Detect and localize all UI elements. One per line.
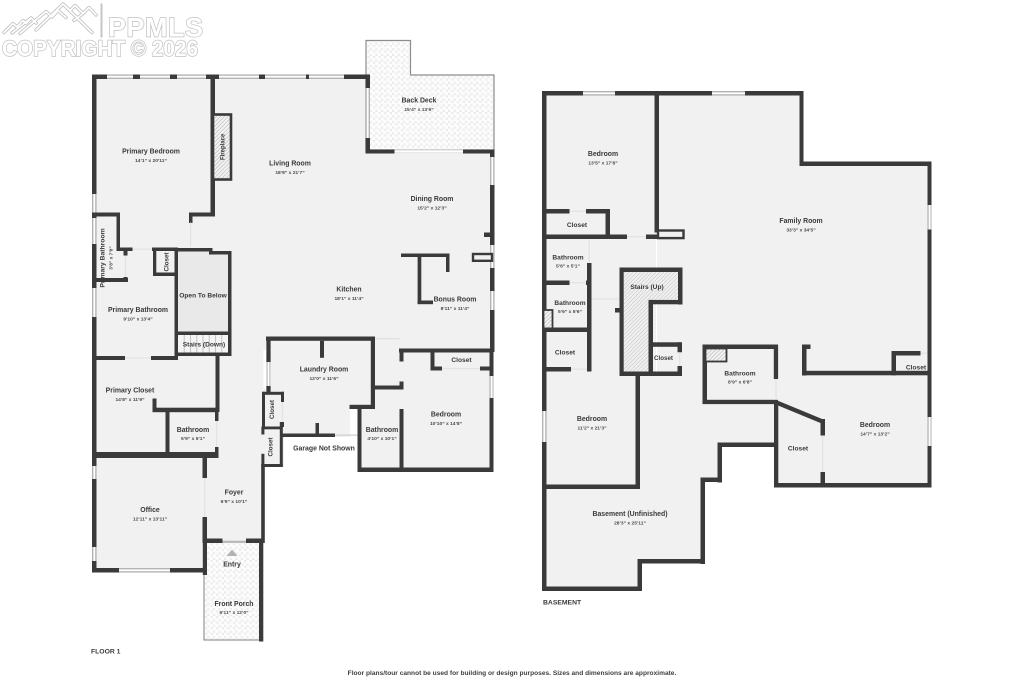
svg-text:Bedroom: Bedroom [860, 422, 890, 429]
svg-text:6’11” x 12’0”: 6’11” x 12’0” [219, 610, 249, 616]
svg-text:Dining Room: Dining Room [411, 196, 454, 203]
svg-text:Stairs (Down): Stairs (Down) [183, 342, 226, 349]
svg-text:Living Room: Living Room [269, 161, 311, 168]
svg-text:Bedroom: Bedroom [431, 412, 461, 419]
svg-text:Primary Bathroom: Primary Bathroom [108, 307, 168, 314]
svg-text:8’9” x 6’8”: 8’9” x 6’8” [728, 380, 752, 386]
svg-text:5’9” x 5’1”: 5’9” x 5’1” [181, 436, 205, 442]
svg-text:Closet: Closet [451, 357, 472, 364]
svg-text:Bedroom: Bedroom [588, 151, 618, 158]
svg-text:Closet: Closet [268, 438, 275, 457]
svg-text:13’5” x 17’8”: 13’5” x 17’8” [588, 161, 618, 167]
svg-text:Floor plans/tour cannot be use: Floor plans/tour cannot be used for buil… [348, 670, 677, 677]
svg-text:Bathroom: Bathroom [552, 255, 583, 262]
svg-text:33’3” x 34’5”: 33’3” x 34’5” [786, 228, 816, 234]
svg-text:FLOOR 1: FLOOR 1 [91, 649, 121, 656]
svg-text:Bathroom: Bathroom [366, 427, 399, 434]
svg-text:28’3” x 25’11”: 28’3” x 25’11” [614, 521, 646, 527]
svg-text:Primary Bedroom: Primary Bedroom [122, 149, 180, 156]
svg-text:12’11” x 13’11”: 12’11” x 13’11” [133, 517, 168, 523]
svg-text:Front Porch: Front Porch [214, 601, 253, 608]
svg-text:Stairs (Up): Stairs (Up) [630, 284, 663, 291]
svg-text:Kitchen: Kitchen [336, 287, 361, 294]
svg-text:3’8” x 7’8”: 3’8” x 7’8” [109, 246, 115, 270]
svg-text:8’11” x 11’4”: 8’11” x 11’4” [441, 306, 470, 312]
svg-text:5’6” x 5’6”: 5’6” x 5’6” [558, 309, 582, 315]
svg-text:Bedroom: Bedroom [577, 416, 607, 423]
svg-text:18’8” x 21’7”: 18’8” x 21’7” [275, 170, 305, 176]
svg-text:14’7” x 13’2”: 14’7” x 13’2” [860, 432, 890, 438]
svg-text:Closet: Closet [654, 355, 673, 362]
svg-text:Back Deck: Back Deck [402, 98, 437, 105]
svg-text:6’9” x 10’1”: 6’9” x 10’1” [221, 499, 248, 505]
svg-text:Closet: Closet [164, 253, 171, 272]
svg-text:14’8” x 11’9”: 14’8” x 11’9” [115, 397, 145, 403]
svg-text:9’10” x 13’4”: 9’10” x 13’4” [123, 317, 153, 323]
svg-text:4’10” x 10’1”: 4’10” x 10’1” [367, 436, 397, 442]
svg-text:Laundry Room: Laundry Room [300, 367, 349, 374]
svg-text:18’1” x 11’4”: 18’1” x 11’4” [334, 296, 364, 302]
svg-text:Closet: Closet [906, 365, 927, 372]
svg-text:15’4” x 13’6”: 15’4” x 13’6” [404, 107, 434, 113]
svg-text:COPYRIGHT © 2026: COPYRIGHT © 2026 [2, 36, 198, 61]
svg-text:12’0” x 11’6”: 12’0” x 11’6” [309, 376, 339, 382]
svg-text:Office: Office [140, 507, 160, 514]
svg-text:Garage Not Shown: Garage Not Shown [293, 446, 355, 453]
svg-text:15’2” x 12’3”: 15’2” x 12’3” [417, 206, 447, 212]
svg-text:Primary Closet: Primary Closet [106, 388, 155, 395]
svg-text:11’2” x 21’3”: 11’2” x 21’3” [577, 426, 607, 432]
svg-text:Foyer: Foyer [225, 490, 244, 497]
svg-text:Fireplace: Fireplace [221, 133, 227, 160]
svg-text:Bonus Room: Bonus Room [434, 297, 477, 304]
svg-text:Entry: Entry [223, 562, 241, 569]
svg-text:10’10” x 14’8”: 10’10” x 14’8” [430, 421, 463, 427]
svg-text:Closet: Closet [567, 222, 588, 229]
svg-text:Family Room: Family Room [779, 218, 822, 225]
svg-text:Open To Below: Open To Below [179, 293, 227, 300]
svg-text:BASEMENT: BASEMENT [543, 600, 582, 607]
svg-text:14’1” x 20’11”: 14’1” x 20’11” [135, 158, 167, 164]
svg-text:Closet: Closet [269, 400, 276, 419]
svg-text:Closet: Closet [555, 350, 576, 357]
svg-text:Basement (Unfinished): Basement (Unfinished) [592, 511, 667, 518]
svg-text:Bathroom: Bathroom [554, 300, 585, 307]
svg-text:Bathroom: Bathroom [177, 427, 210, 434]
svg-text:Bathroom: Bathroom [724, 371, 755, 378]
svg-text:Closet: Closet [788, 446, 809, 453]
svg-text:Primary Bathroom: Primary Bathroom [100, 228, 107, 287]
svg-text:5’6” x 5’1”: 5’6” x 5’1” [556, 264, 580, 270]
